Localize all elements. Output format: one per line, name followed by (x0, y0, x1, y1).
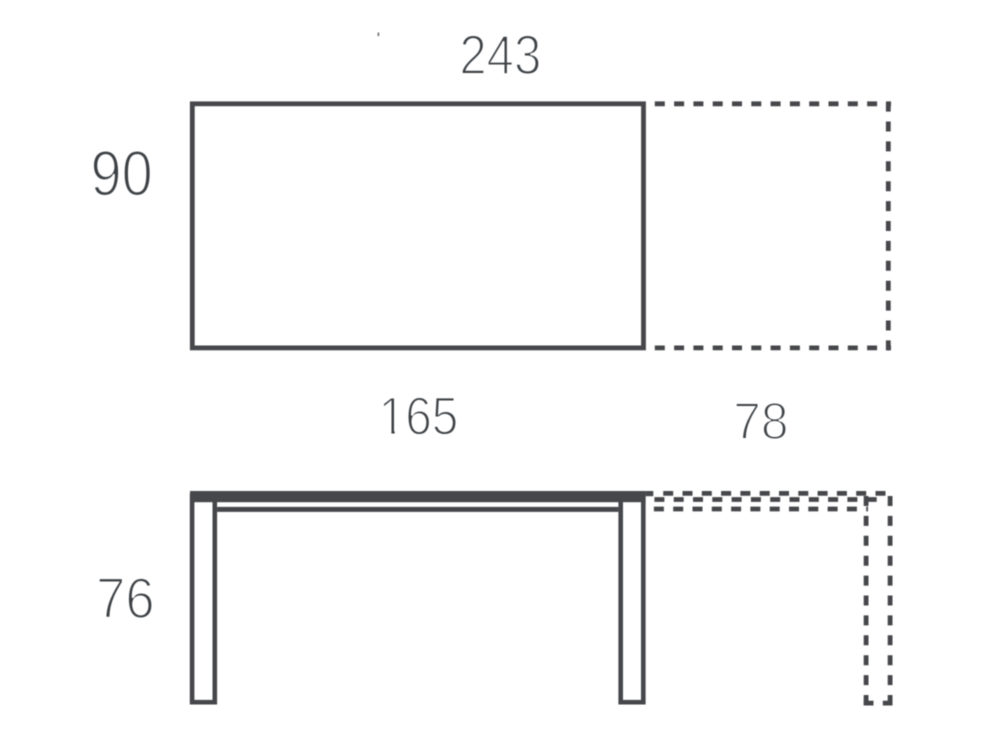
svg-text:165: 165 (379, 386, 459, 446)
svg-text:78: 78 (733, 392, 788, 450)
svg-text:76: 76 (96, 566, 154, 631)
svg-text:90: 90 (91, 138, 153, 209)
svg-text:243: 243 (459, 25, 541, 86)
